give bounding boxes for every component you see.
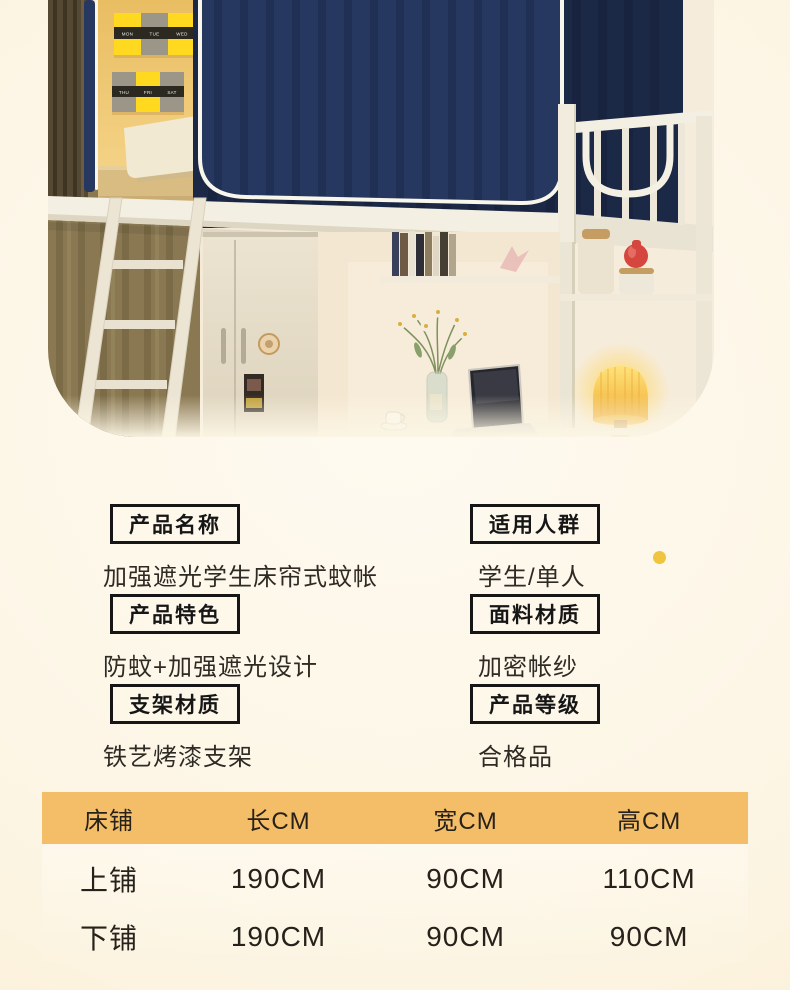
spec-grade: 产品等级 合格品	[470, 684, 600, 772]
photo-bottom-fade	[48, 395, 714, 437]
spec-audience: 适用人群 学生/单人	[470, 504, 600, 592]
size-table: 床铺 长CM 宽CM 高CM 上铺 190CM 90CM 110CM 下铺 19…	[42, 792, 748, 966]
calendar-label: WED	[176, 32, 188, 37]
header-width: 宽CM	[381, 801, 550, 836]
spec-value-frame-material: 铁艺烤漆支架	[103, 737, 253, 772]
canister	[578, 236, 614, 294]
wardrobe-handle	[241, 328, 246, 364]
cell-height: 110CM	[550, 863, 748, 895]
header-length: 长CM	[176, 801, 381, 836]
spec-frame-material: 支架材质 铁艺烤漆支架	[110, 684, 253, 772]
calendar-label: MON	[122, 32, 133, 37]
spec-product-name: 产品名称 加强遮光学生床帘式蚊帐	[110, 504, 378, 592]
spec-value-fabric: 加密帐纱	[478, 647, 600, 682]
header-height: 高CM	[550, 801, 748, 836]
product-photo-illustration: MON TUE WED THU FRI SAT	[48, 0, 714, 437]
spec-fabric: 面料材质 加密帐纱	[470, 594, 600, 682]
spec-label-grade: 产品等级	[470, 684, 600, 724]
calendar-card-week1: MON TUE WED	[114, 13, 196, 58]
spec-label-fabric: 面料材质	[470, 594, 600, 634]
calendar-label: TUE	[150, 32, 160, 37]
spec-label-audience: 适用人群	[470, 504, 600, 544]
spec-label-frame-material: 支架材质	[110, 684, 240, 724]
calendar-label: THU	[119, 90, 129, 95]
cell-length: 190CM	[176, 921, 381, 953]
calendar-label: FRI	[144, 90, 152, 95]
yellow-dot-decoration	[653, 551, 666, 564]
spec-label-product-name: 产品名称	[110, 504, 240, 544]
spec-value-grade: 合格品	[478, 737, 600, 772]
spec-label-features: 产品特色	[110, 594, 240, 634]
spec-value-features: 防蚊+加强遮光设计	[103, 647, 318, 682]
cell-bed: 上铺	[42, 859, 176, 899]
calendar-label: SAT	[167, 90, 176, 95]
cell-width: 90CM	[381, 921, 550, 953]
upper-curtain	[48, 0, 88, 200]
cell-length: 190CM	[176, 863, 381, 895]
wardrobe-handle	[221, 328, 226, 364]
cell-height: 90CM	[550, 921, 748, 953]
spec-value-audience: 学生/单人	[478, 557, 600, 592]
size-table-body: 上铺 190CM 90CM 110CM 下铺 190CM 90CM 90CM	[42, 844, 748, 966]
product-photo: MON TUE WED THU FRI SAT	[48, 0, 714, 437]
table-row-lower-bunk: 下铺 190CM 90CM 90CM	[42, 908, 748, 966]
cell-width: 90CM	[381, 863, 550, 895]
product-detail-page: MON TUE WED THU FRI SAT	[0, 0, 790, 990]
header-bed: 床铺	[42, 801, 176, 836]
spec-features: 产品特色 防蚊+加强遮光设计	[110, 594, 318, 682]
bed-opening: MON TUE WED THU FRI SAT	[98, 0, 200, 202]
cell-bed: 下铺	[42, 917, 176, 957]
calendar-card-week2: THU FRI SAT	[112, 72, 184, 115]
table-row-upper-bunk: 上铺 190CM 90CM 110CM	[42, 850, 748, 908]
size-table-header: 床铺 长CM 宽CM 高CM	[42, 792, 748, 844]
spec-value-product-name: 加强遮光学生床帘式蚊帐	[103, 557, 378, 592]
